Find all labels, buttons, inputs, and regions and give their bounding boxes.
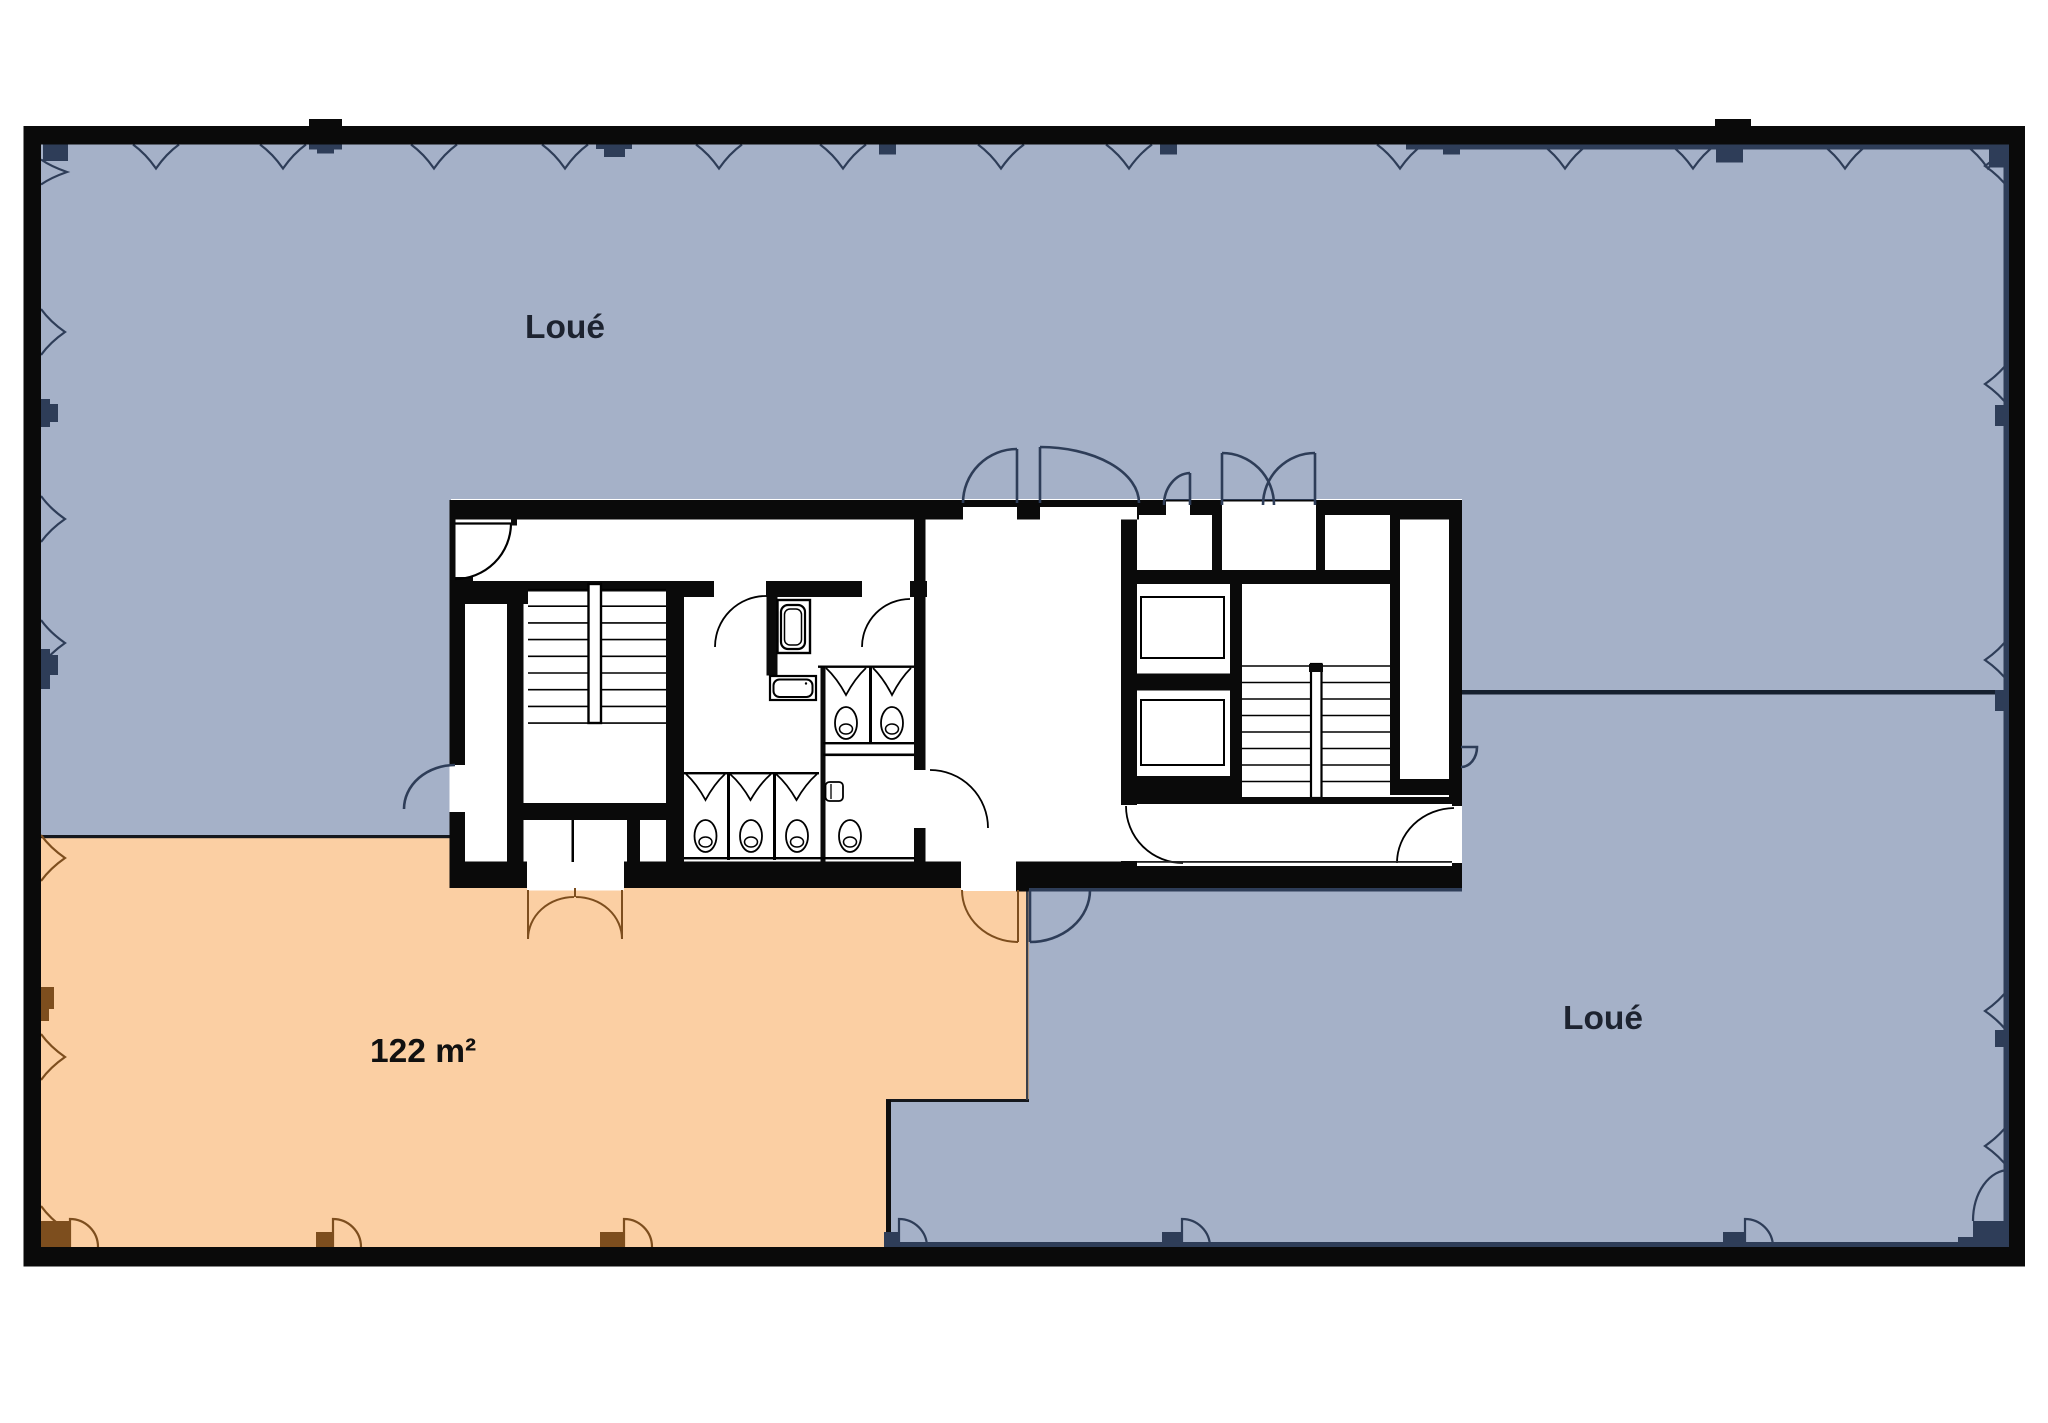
svg-text:122 m²: 122 m² [370, 1033, 476, 1070]
svg-text:Loué: Loué [525, 309, 605, 346]
svg-text:Loué: Loué [1563, 1000, 1643, 1037]
